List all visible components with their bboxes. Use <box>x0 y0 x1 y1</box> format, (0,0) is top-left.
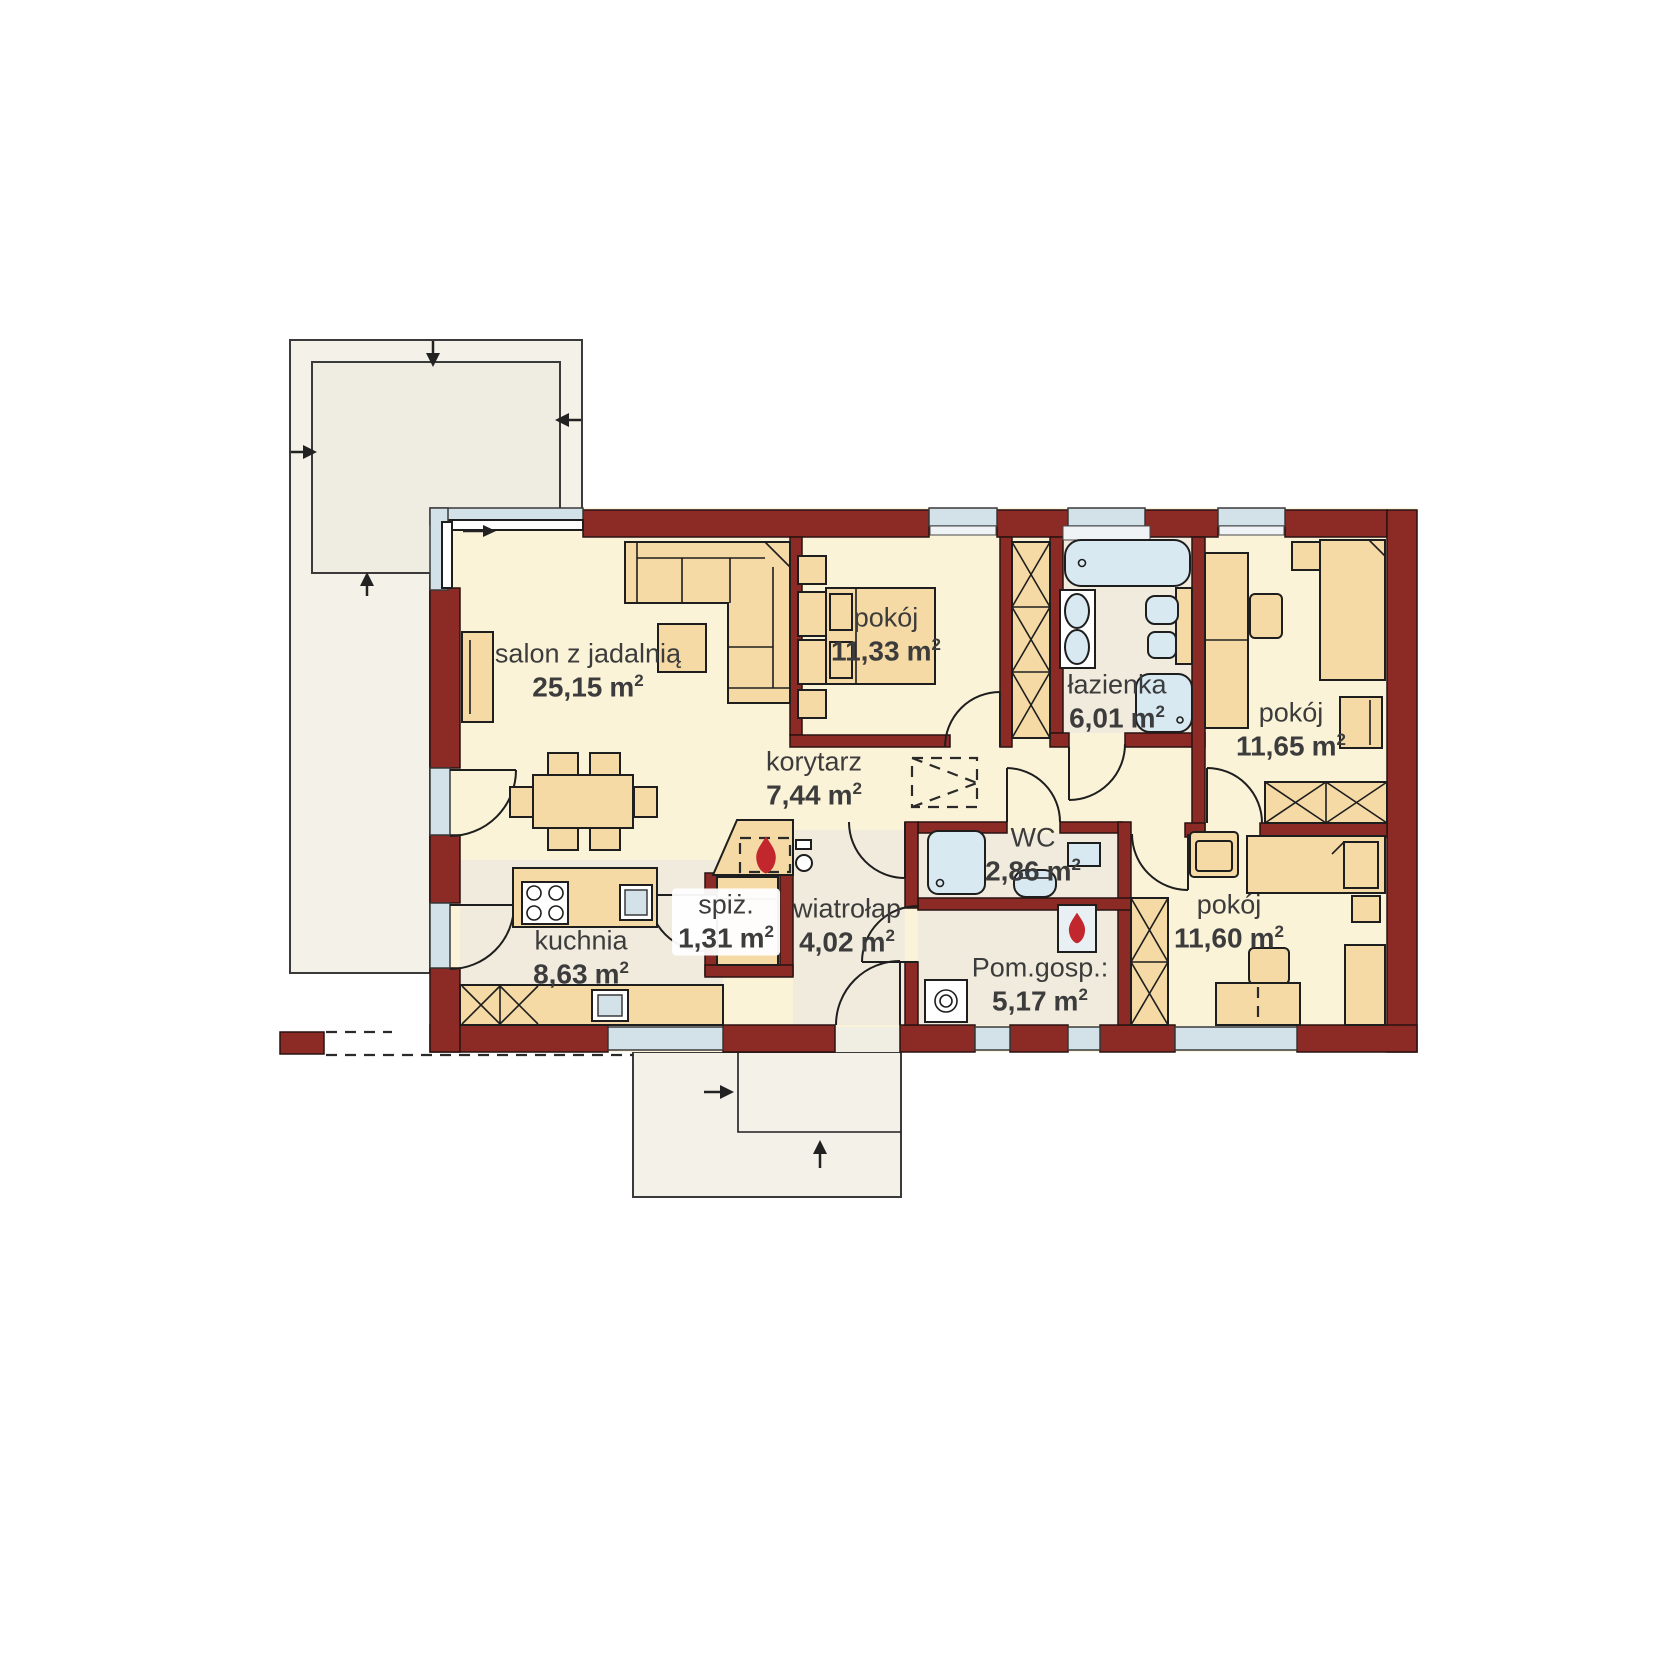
floor-plan-page: salon z jadalnią 25,15m2 pokój 11,33m2 ł… <box>0 0 1680 1680</box>
dining-table <box>533 775 633 828</box>
dining-chair <box>634 787 657 817</box>
room-area: 7,44m2 <box>766 778 862 811</box>
dining-chair <box>548 753 578 775</box>
room-name: spiż. <box>678 890 774 922</box>
room-name: Pom.gosp.: <box>972 953 1109 985</box>
label-kuchnia: kuchnia 8,63m2 <box>533 926 629 991</box>
floor-plan-drawing <box>0 0 1680 1680</box>
room-area: 5,17m2 <box>972 984 1109 1017</box>
label-pokoj-2: pokój 11,65m2 <box>1236 698 1346 763</box>
dining-chair <box>548 828 578 850</box>
toilet-backing <box>1176 588 1192 664</box>
room-area: 11,33m2 <box>831 634 941 667</box>
washing-machine <box>925 980 967 1022</box>
room-name: WC <box>985 823 1081 855</box>
label-pokoj-3: pokój 11,60m2 <box>1174 890 1284 955</box>
utility-window-1 <box>975 1027 1010 1050</box>
label-pokoj-1: pokój 11,33m2 <box>831 603 941 668</box>
nightstand <box>798 592 826 636</box>
dining-chair <box>590 753 620 775</box>
label-salon: salon z jadalnią 25,15m2 <box>495 639 681 704</box>
cabinet <box>1352 896 1380 922</box>
room-area: 25,15m2 <box>495 670 681 703</box>
room-area: 2,86m2 <box>985 854 1081 887</box>
single-bed <box>1320 540 1385 680</box>
terrace-door-2 <box>430 903 450 968</box>
label-korytarz: korytarz 7,44m2 <box>766 747 862 812</box>
room-name: kuchnia <box>533 926 629 958</box>
label-spizarnia: spiż. 1,31m2 <box>672 889 780 956</box>
hall-wardrobe <box>1012 542 1050 738</box>
wall-stub <box>280 1032 324 1054</box>
nightstand <box>798 640 826 684</box>
room-area: 6,01m2 <box>1067 701 1166 734</box>
washbasin <box>1065 594 1089 628</box>
room-name: łazienka <box>1067 670 1166 702</box>
bidet <box>1148 632 1176 658</box>
terrace-door-1 <box>430 768 450 835</box>
seat <box>1340 697 1382 748</box>
label-lazienka: łazienka 6,01m2 <box>1067 670 1166 735</box>
room-name: wiatrołap <box>793 894 901 926</box>
label-pom-gosp: Pom.gosp.: 5,17m2 <box>972 953 1109 1018</box>
dining-chair <box>510 787 533 817</box>
room-name: pokój <box>1174 890 1284 922</box>
bedroom2-window <box>1218 508 1285 526</box>
bedroom1-window <box>929 508 997 526</box>
entrance-porch <box>633 1052 901 1197</box>
bedroom3-window <box>1175 1027 1297 1050</box>
room-name: pokój <box>831 603 941 635</box>
kitchen-window <box>608 1027 723 1050</box>
cabinet <box>798 690 826 718</box>
room-area: 1,31m2 <box>678 921 774 954</box>
bathroom-window <box>1068 508 1145 526</box>
room-area: 8,63m2 <box>533 957 629 990</box>
cabinet <box>798 556 826 584</box>
entrance-threshold <box>835 1027 900 1052</box>
room-area: 4,02m2 <box>793 925 901 958</box>
nightstand <box>1292 542 1320 570</box>
room-name: korytarz <box>766 747 862 779</box>
utility-window-2 <box>1068 1027 1100 1050</box>
label-wiatrolap: wiatrołap 4,02m2 <box>793 894 901 959</box>
tv-cabinet <box>462 632 493 722</box>
bathtub <box>1065 540 1190 586</box>
room-area: 11,60m2 <box>1174 921 1284 954</box>
dining-chair <box>590 828 620 850</box>
cabinet <box>1345 945 1385 1025</box>
room-name: salon z jadalnią <box>495 639 681 671</box>
desk-chair <box>1250 594 1282 638</box>
washbasin <box>1065 630 1089 664</box>
toilet <box>1146 596 1178 624</box>
room-area: 11,65m2 <box>1236 729 1346 762</box>
pillow <box>1344 842 1378 888</box>
label-wc: WC 2,86m2 <box>985 823 1081 888</box>
room-name: pokój <box>1236 698 1346 730</box>
